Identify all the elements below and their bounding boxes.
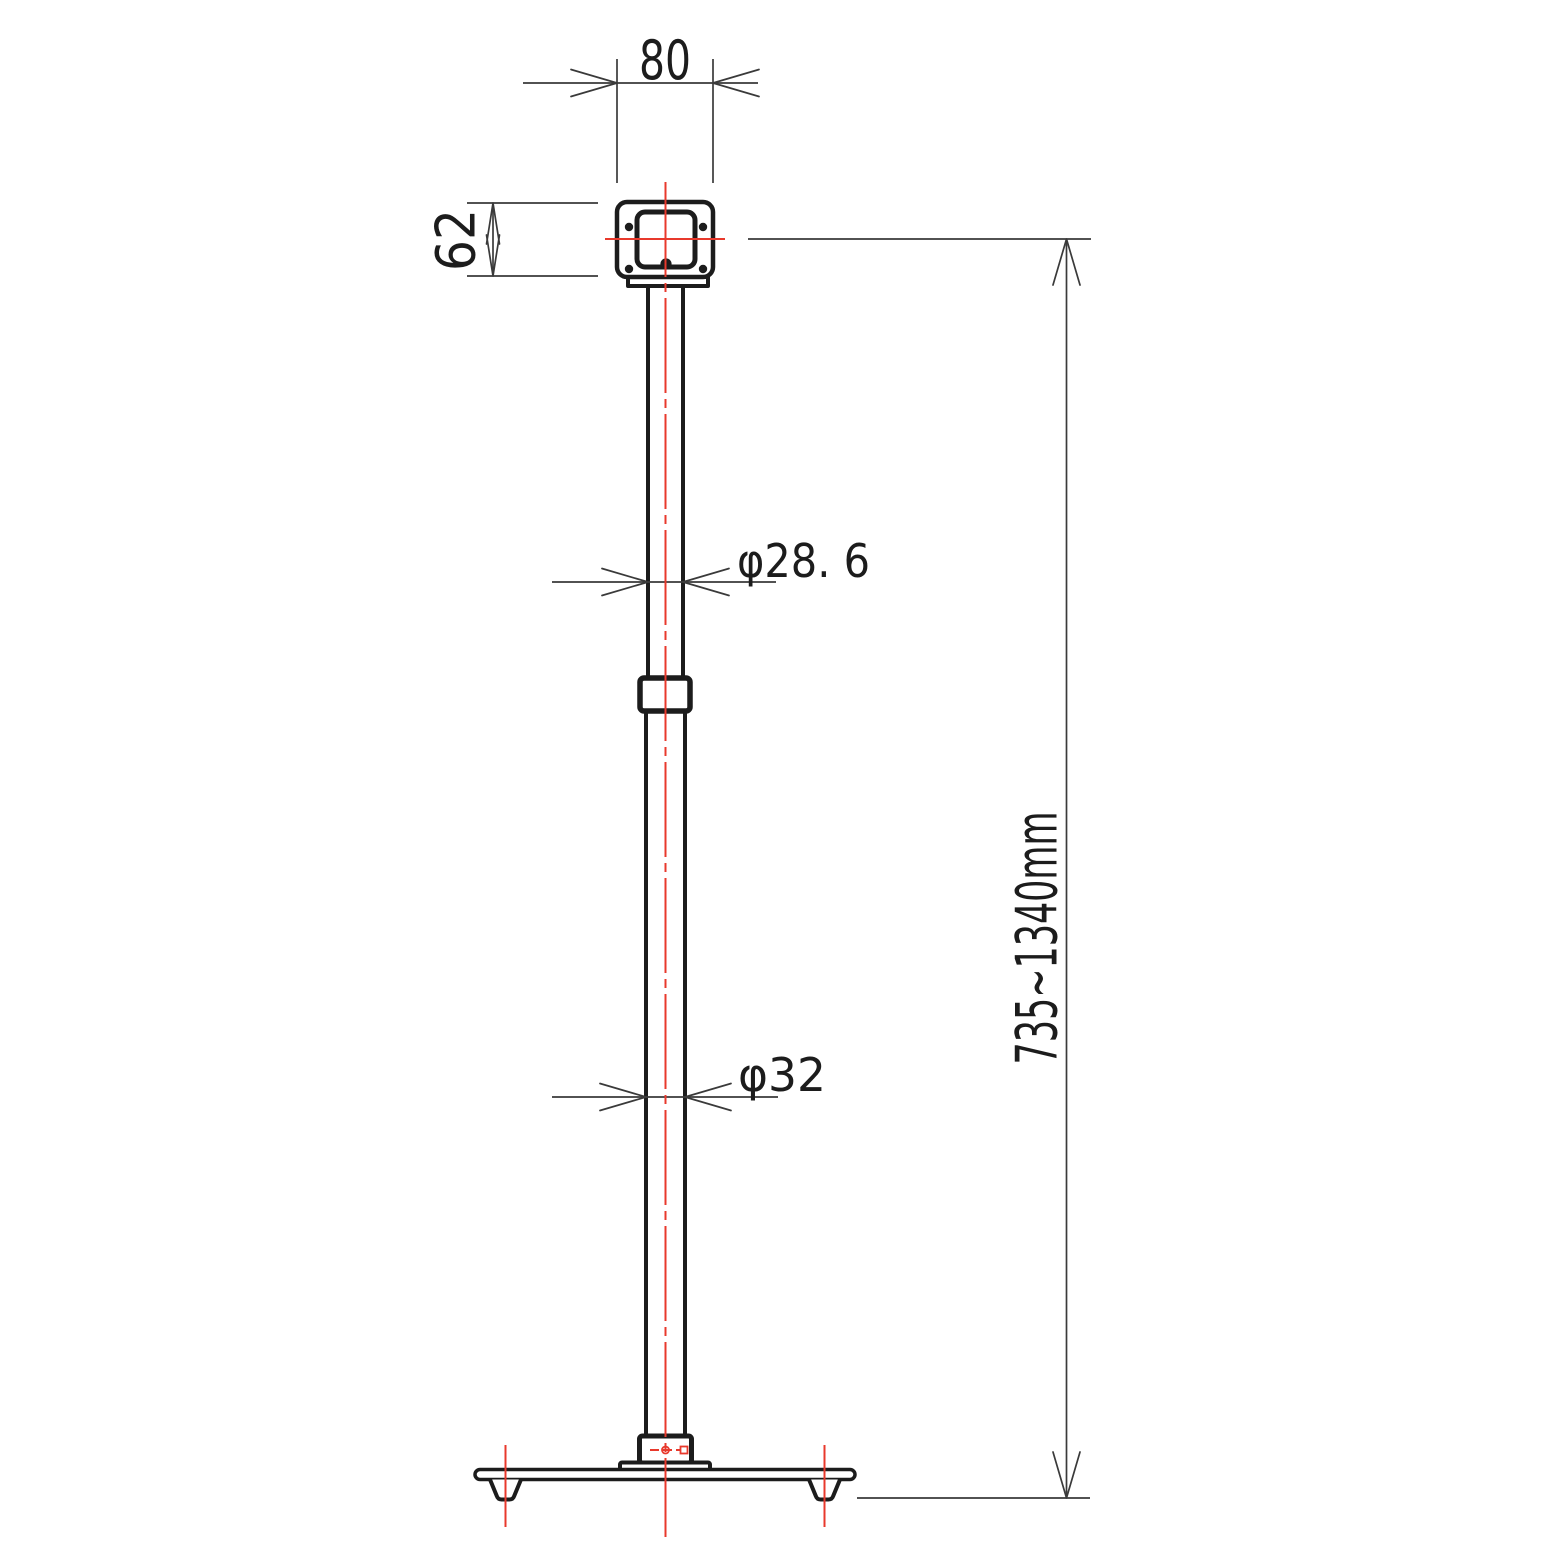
dimension-label-overall-height: 735~1340mm — [1005, 812, 1071, 1065]
plate-screw-hole-bottom-left — [625, 265, 633, 273]
dimension-lower-pole-diameter: φ32 — [552, 1048, 826, 1111]
pole-stand-technical-drawing: 80 62 φ28. 6 φ32 735~1340mm — [0, 0, 1552, 1568]
dimension-label-top-width: 80 — [639, 29, 691, 92]
dimension-upper-pole-diameter: φ28. 6 — [552, 534, 870, 596]
dimension-plate-height: 62 — [425, 203, 598, 276]
plate-screw-hole-top-right — [699, 223, 707, 231]
drawing-canvas: 80 62 φ28. 6 φ32 735~1340mm — [0, 0, 1552, 1568]
dimension-overall-height: 735~1340mm — [748, 239, 1091, 1498]
dimension-top-width: 80 — [523, 29, 759, 183]
dimension-label-upper-pole-diameter: φ28. 6 — [737, 534, 870, 588]
dimension-label-plate-height: 62 — [425, 209, 488, 271]
dimension-label-lower-pole-diameter: φ32 — [738, 1048, 826, 1102]
plate-screw-hole-top-left — [625, 223, 633, 231]
plate-screw-hole-bottom-right — [699, 265, 707, 273]
